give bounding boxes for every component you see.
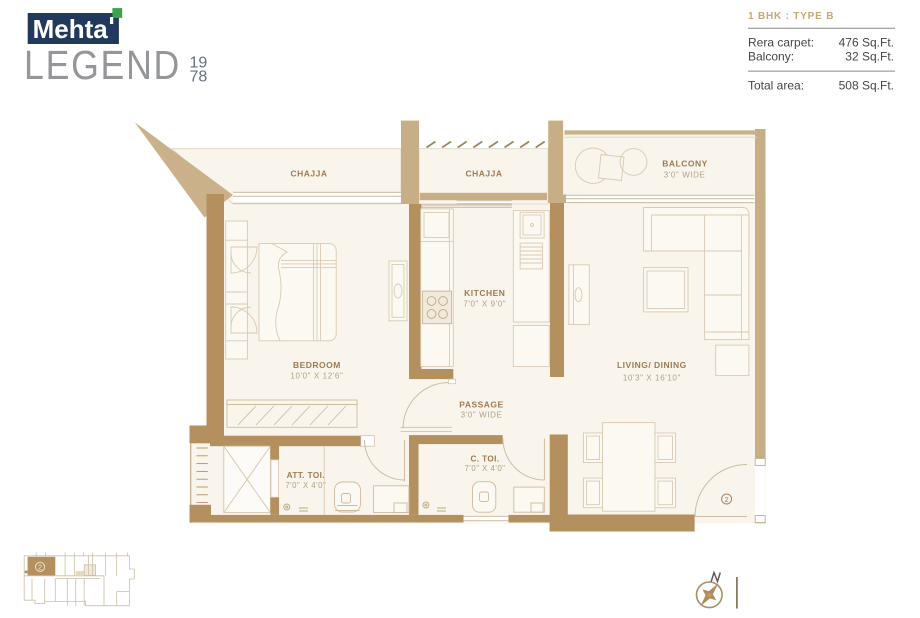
svg-text:CHAJJA: CHAJJA [290,169,327,179]
svg-text:10'0" X 12'6": 10'0" X 12'6" [290,372,343,381]
svg-text:2: 2 [725,495,729,504]
svg-text:476 Sq.Ft.: 476 Sq.Ft. [839,36,894,50]
svg-text:Balcony:: Balcony: [748,50,794,64]
svg-text:3'0" WIDE: 3'0" WIDE [664,171,706,180]
svg-text:LIVING/ DINING: LIVING/ DINING [617,360,687,370]
svg-text:LEGEND: LEGEND [24,43,181,89]
svg-text:10'3" X 16'10": 10'3" X 16'10" [623,374,681,383]
svg-text:7'0" X 4'0": 7'0" X 4'0" [285,481,326,490]
svg-text:3'0" WIDE: 3'0" WIDE [461,411,503,420]
svg-text:C. TOI.: C. TOI. [470,455,499,464]
svg-text:KITCHEN: KITCHEN [464,288,505,298]
svg-text:1 BHK : TYPE B: 1 BHK : TYPE B [748,11,834,22]
svg-text:2: 2 [38,565,42,572]
svg-text:78: 78 [190,68,208,85]
svg-text:Mehta: Mehta [33,14,109,44]
svg-text:PASSAGE: PASSAGE [459,400,503,410]
svg-text:ATT. TOI.: ATT. TOI. [287,471,325,480]
svg-text:32 Sq.Ft.: 32 Sq.Ft. [845,50,894,64]
svg-text:CHAJJA: CHAJJA [465,169,502,179]
svg-text:BALCONY: BALCONY [662,159,708,169]
svg-text:Total area:: Total area: [748,79,804,93]
svg-text:7'0" X 9'0": 7'0" X 9'0" [463,300,506,309]
svg-text:508 Sq.Ft.: 508 Sq.Ft. [839,79,894,93]
svg-text:7'0" X 4'0": 7'0" X 4'0" [465,464,506,473]
svg-text:Rera carpet:: Rera carpet: [748,36,814,50]
svg-text:BEDROOM: BEDROOM [293,360,341,370]
